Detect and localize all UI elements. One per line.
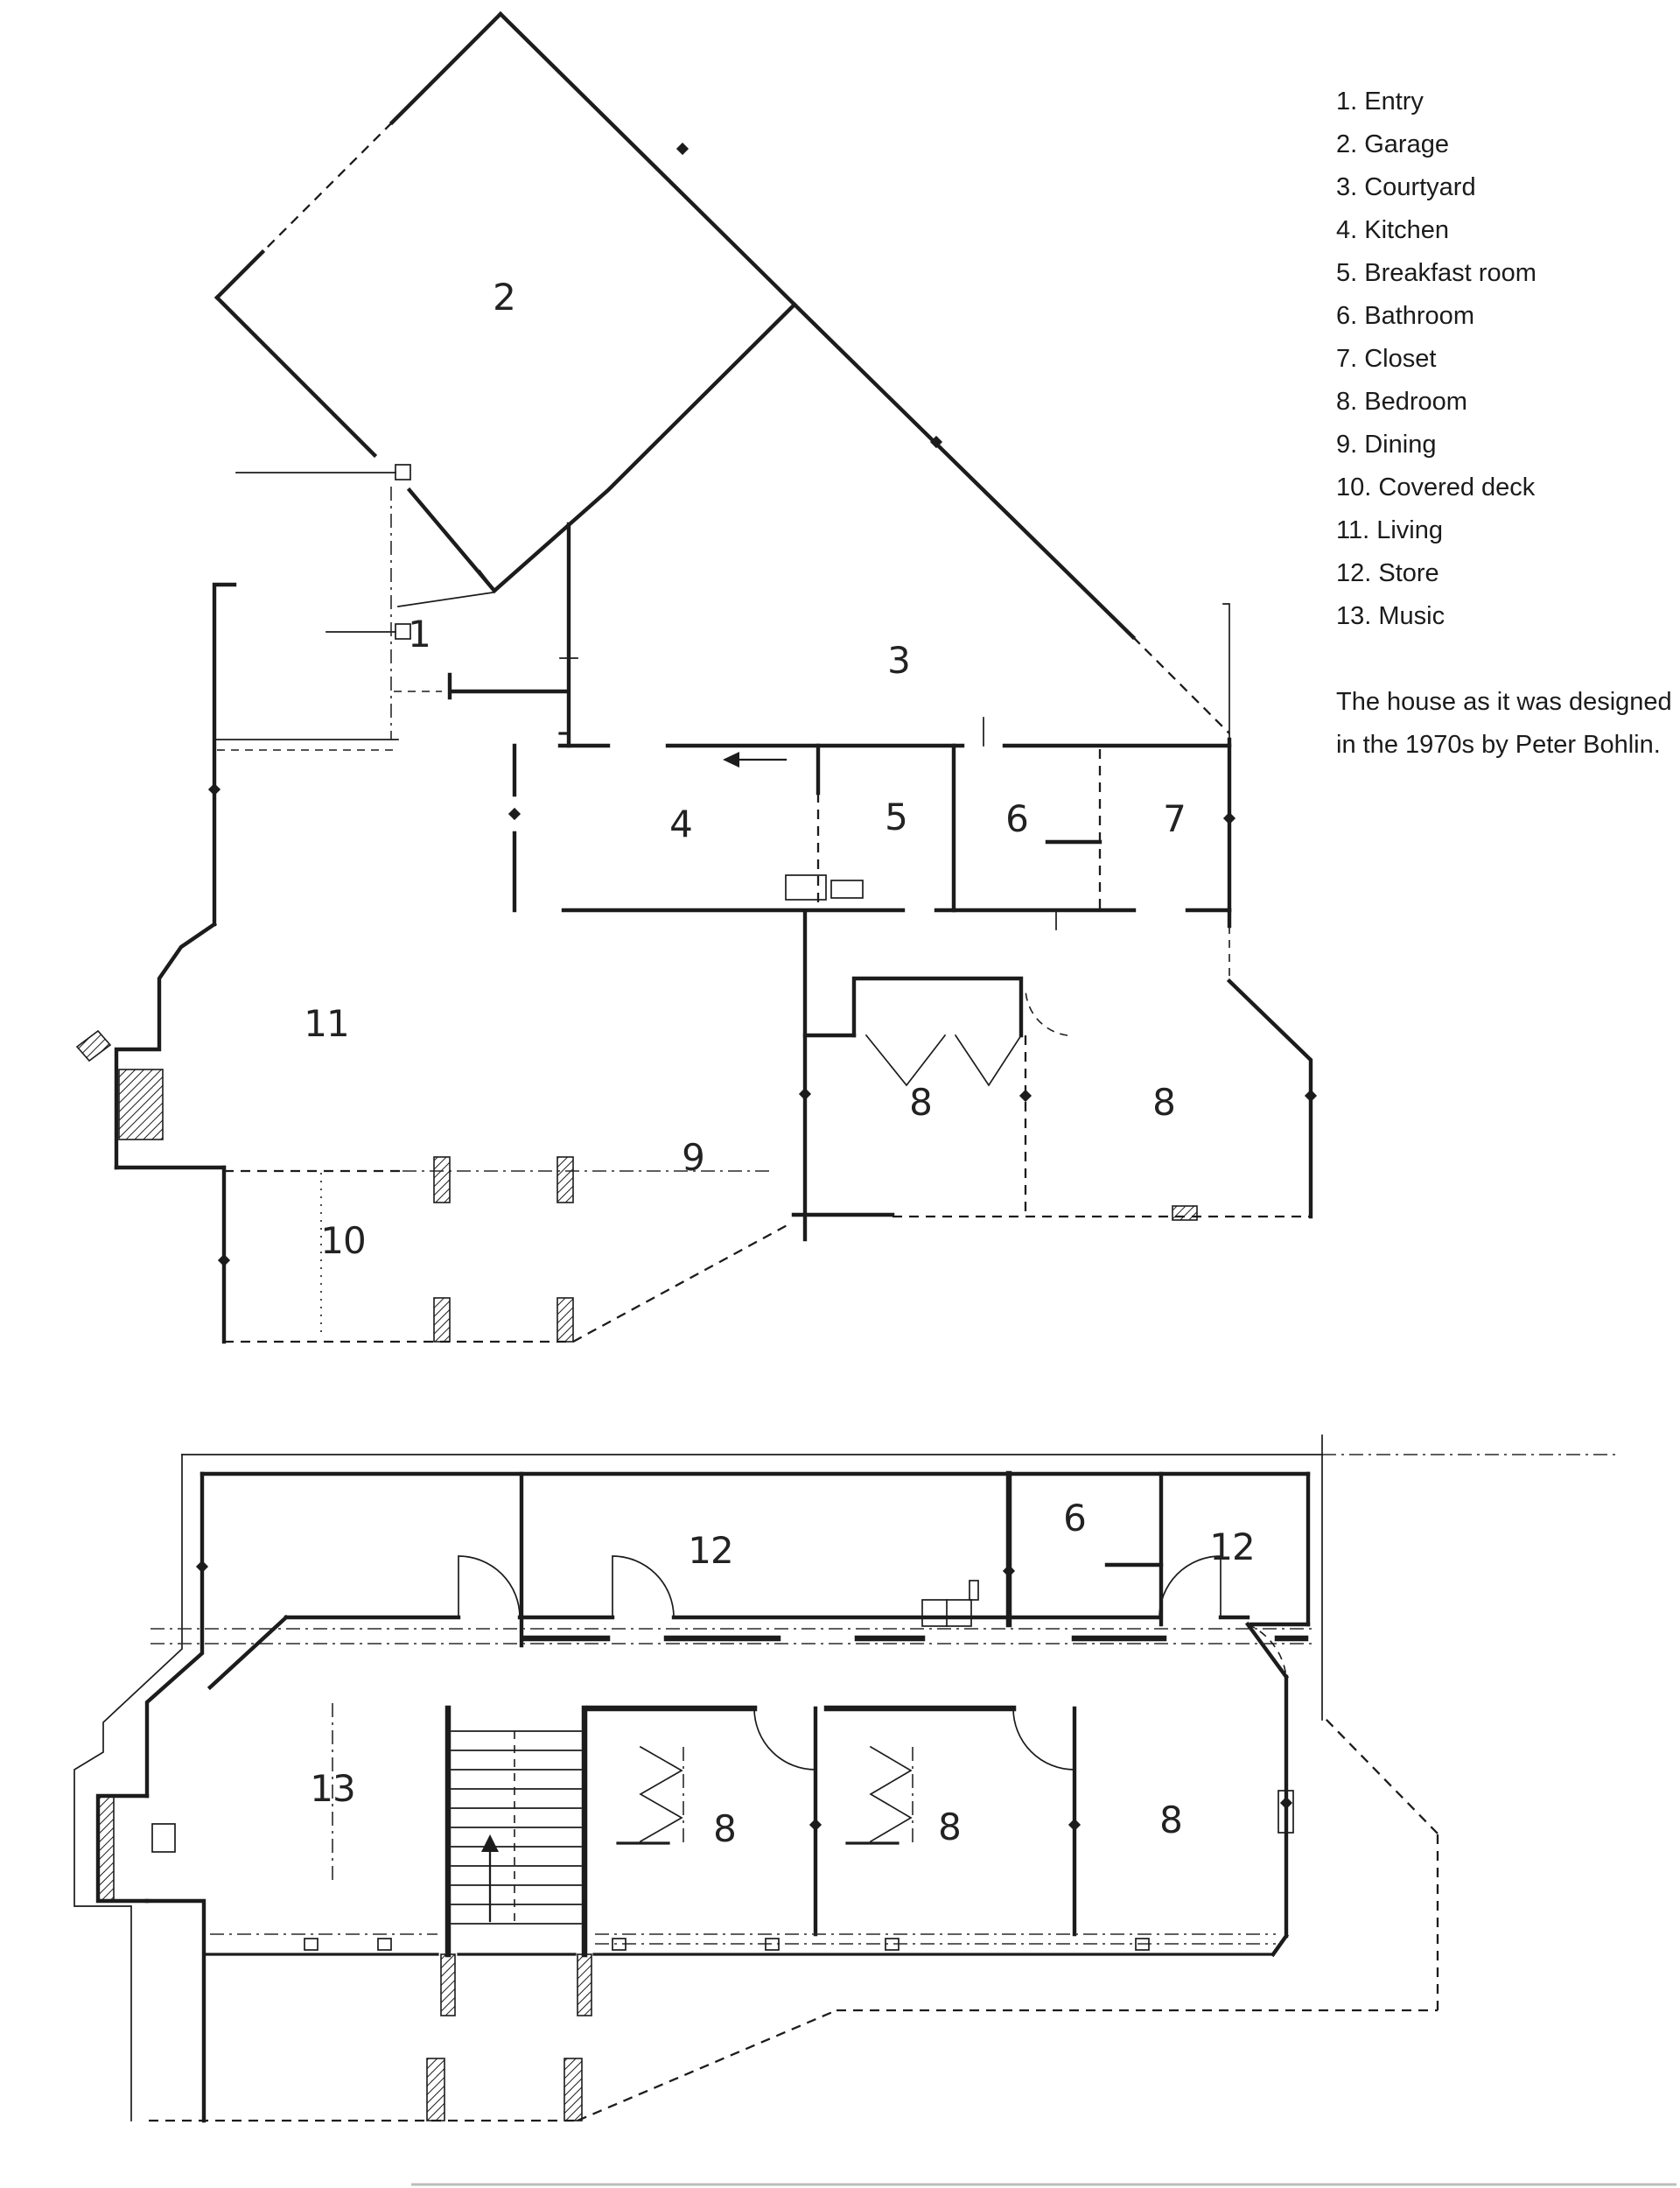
legend-item: 3. Courtyard [1336, 166, 1679, 209]
bedroom-closet [854, 978, 1021, 1035]
legend-item: 12. Store [1336, 552, 1679, 595]
wall-ticks-lower [196, 1560, 1292, 1831]
legend-item: 5. Breakfast room [1336, 252, 1679, 295]
legend-item: 6. Bathroom [1336, 295, 1679, 338]
bifold-doors [866, 1035, 1021, 1085]
upper-floor-plan-walls [77, 14, 1317, 1342]
fireplace [119, 1069, 163, 1140]
chimney [77, 1031, 110, 1061]
kitchen-counter [786, 875, 826, 900]
legend-list: 1. Entry2. Garage3. Courtyard4. Kitchen5… [1336, 81, 1679, 638]
legend-item: 11. Living [1336, 509, 1679, 552]
wall-ticks [208, 143, 1317, 1266]
door-swing [1025, 987, 1067, 1035]
caption: The house as it was designed in the 1970… [1336, 681, 1680, 767]
legend-item: 9. Dining [1336, 424, 1679, 466]
kitchen-sink [831, 880, 863, 898]
deck-posts-lower [427, 2058, 582, 2121]
staircase [441, 1708, 591, 2016]
legend-item: 13. Music [1336, 595, 1679, 638]
legend-item: 1. Entry [1336, 81, 1679, 123]
legend-item: 8. Bedroom [1336, 381, 1679, 424]
deck-posts [434, 1157, 573, 1342]
stair-up-arrow [481, 1834, 499, 1852]
legend-item: 10. Covered deck [1336, 466, 1679, 509]
page: 213456711889101261213888 1. Entry2. Gara… [0, 0, 1680, 2188]
legend-item: 4. Kitchen [1336, 209, 1679, 252]
legend-item: 7. Closet [1336, 338, 1679, 381]
door-arrow [723, 752, 786, 768]
closets [618, 1747, 913, 1843]
legend-item: 2. Garage [1336, 123, 1679, 166]
lower-floor-plan-walls [74, 1435, 1676, 2184]
